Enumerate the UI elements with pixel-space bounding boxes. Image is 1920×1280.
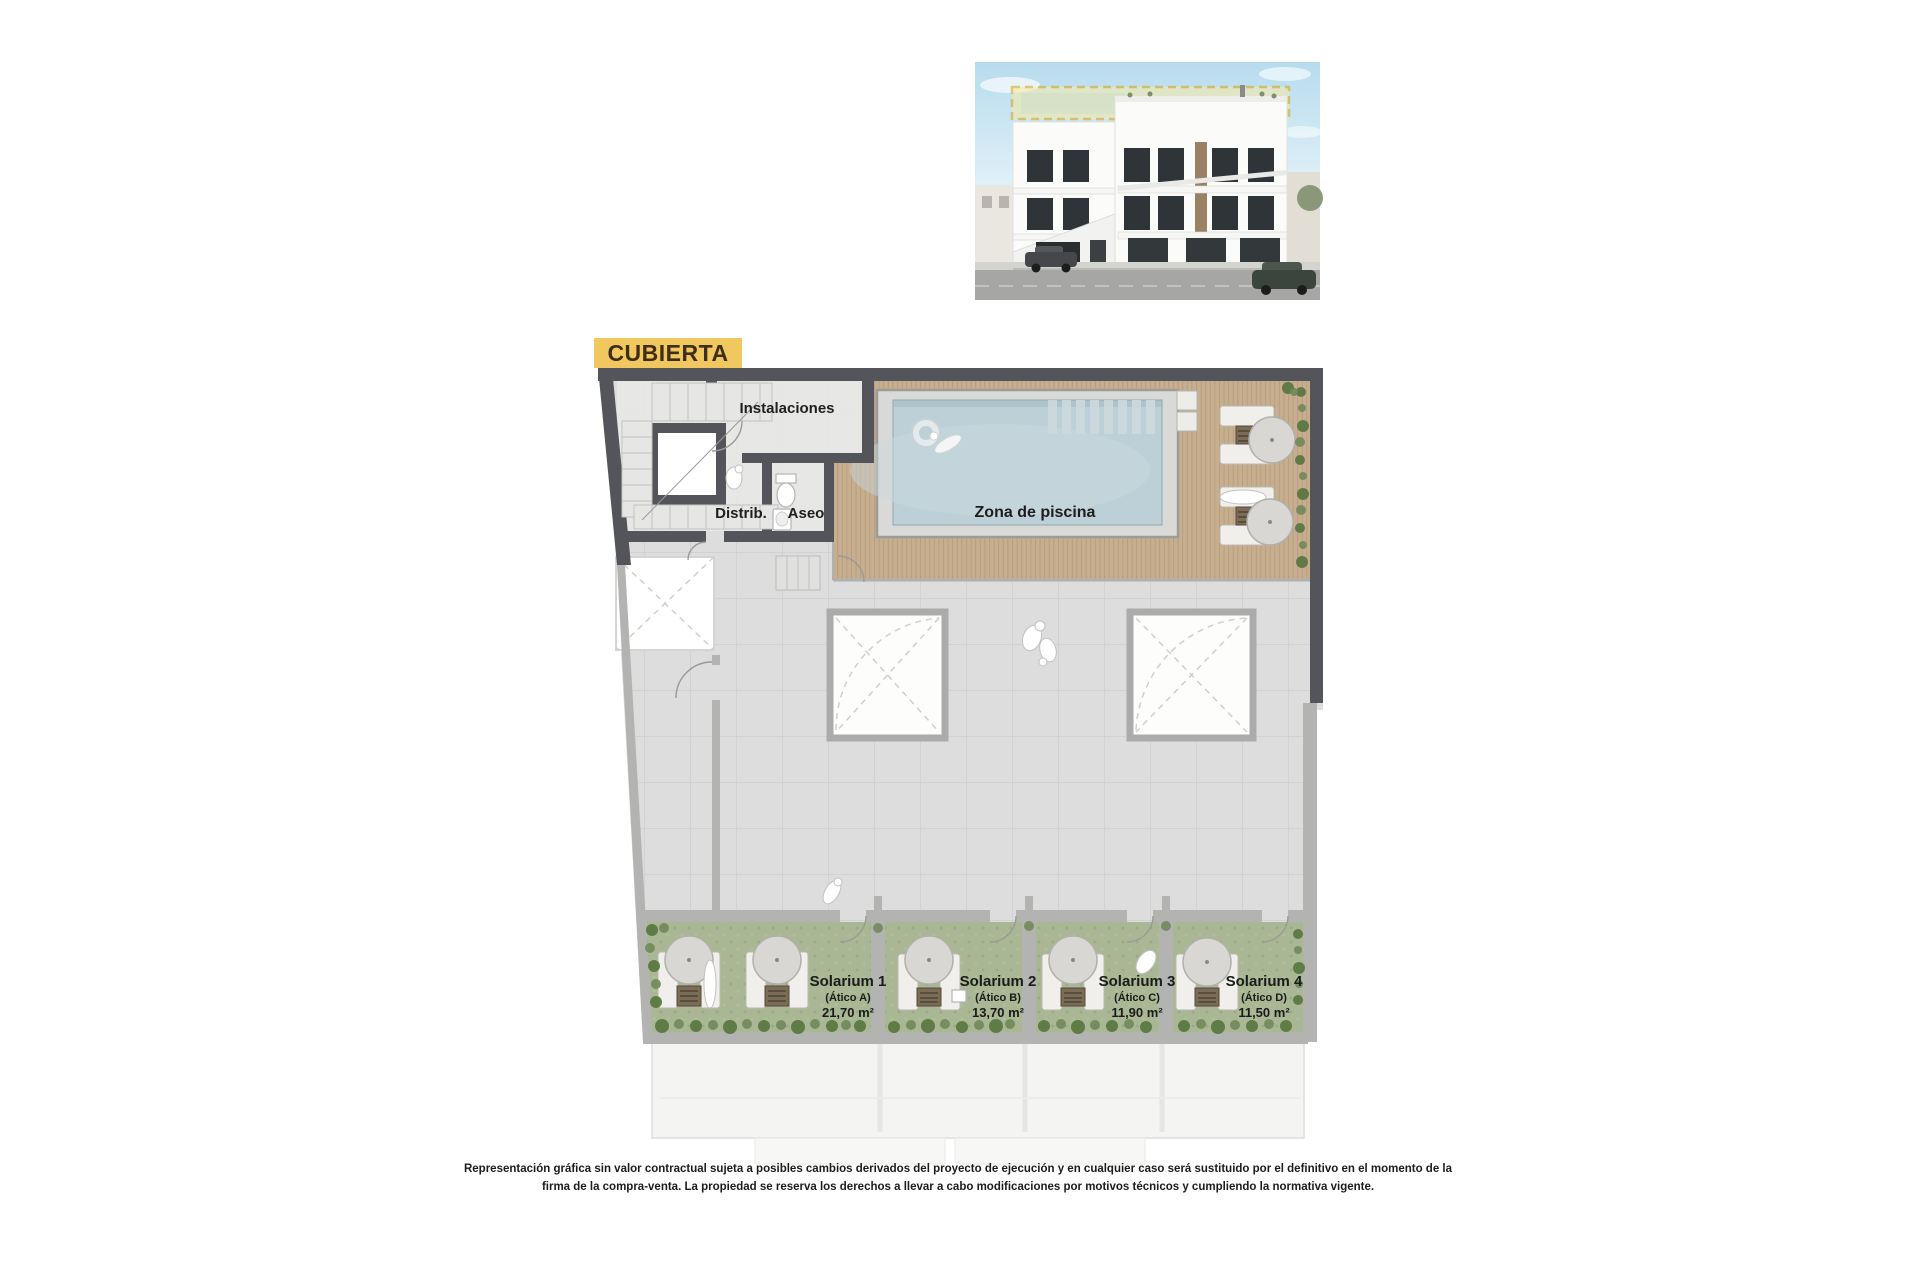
tree [1297, 185, 1323, 211]
svg-text:Solarium 3: Solarium 3 [1099, 973, 1176, 990]
toilet-tank [776, 474, 796, 483]
pool-label: Zona de piscina [975, 504, 1096, 521]
svg-text:(Ático D): (Ático D) [1241, 991, 1287, 1004]
plan-title: CUBIERTA [594, 338, 742, 368]
void-opening [616, 557, 714, 650]
svg-text:Solarium 1: Solarium 1 [810, 973, 887, 990]
room-label-distrib: Distrib. [715, 505, 767, 522]
lower-floor-ghost [652, 1042, 1304, 1164]
disclaimer-line-2: firma de la compra-venta. La propiedad s… [542, 1181, 1374, 1193]
sheet-canvas: CUBIERTA [0, 0, 1920, 1280]
svg-text:13,70 m²: 13,70 m² [972, 1005, 1025, 1020]
disclaimer: Representación gráfica sin valor contrac… [464, 1163, 1453, 1193]
room-label-aseo: Aseo [788, 505, 825, 522]
svg-text:11,50 m²: 11,50 m² [1238, 1005, 1290, 1020]
deck-steps [776, 556, 820, 590]
skylight-left [830, 612, 945, 738]
person-on-roof [1240, 85, 1245, 97]
page-title: CUBIERTA [607, 340, 728, 366]
room-label-instalaciones: Instalaciones [739, 400, 834, 417]
svg-text:Solarium 4: Solarium 4 [1226, 973, 1303, 990]
disclaimer-line-1: Representación gráfica sin valor contrac… [464, 1163, 1453, 1175]
svg-text:(Ático C): (Ático C) [1114, 991, 1160, 1004]
marketing-sheet: CUBIERTA [0, 0, 1920, 1280]
building-render [975, 62, 1323, 300]
skylight-right [1130, 612, 1253, 738]
person-sunbathing [704, 960, 716, 1008]
svg-text:Solarium 2: Solarium 2 [960, 973, 1037, 990]
toilet-bowl [777, 483, 795, 507]
svg-text:21,70 m²: 21,70 m² [822, 1005, 875, 1020]
svg-text:(Ático B): (Ático B) [975, 991, 1021, 1004]
svg-text:(Ático A): (Ático A) [825, 991, 871, 1004]
elevator-shaft [658, 433, 716, 495]
beach-bag [952, 990, 966, 1002]
svg-text:11,90 m²: 11,90 m² [1111, 1005, 1163, 1020]
floor-plan: Instalaciones Distrib. Aseo Zona de pisc… [598, 368, 1323, 1164]
